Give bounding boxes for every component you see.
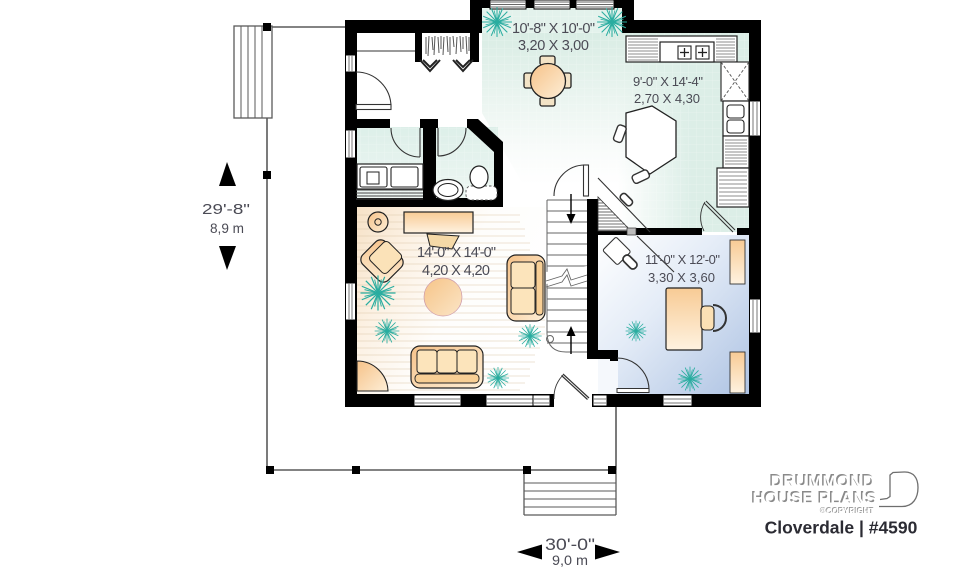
svg-text:14'-0" X 14'-0": 14'-0" X 14'-0" xyxy=(417,245,496,261)
svg-text:29'-8": 29'-8" xyxy=(202,201,250,218)
svg-text:2,70 X 4,30: 2,70 X 4,30 xyxy=(634,91,700,106)
svg-text:4,20 X 4,20: 4,20 X 4,20 xyxy=(422,263,490,279)
svg-text:3,20 X 3,00: 3,20 X 3,00 xyxy=(518,38,589,54)
svg-text:3,30 X 3,60: 3,30 X 3,60 xyxy=(648,270,715,285)
svg-text:10'-8" X 10'-0": 10'-8" X 10'-0" xyxy=(512,21,595,37)
svg-text:9,0 m: 9,0 m xyxy=(552,552,588,568)
svg-text:11'-0" X 12'-0": 11'-0" X 12'-0" xyxy=(645,252,720,267)
svg-text:9'-0" X 14'-4": 9'-0" X 14'-4" xyxy=(633,74,703,89)
svg-text:©COPYRIGHT: ©COPYRIGHT xyxy=(821,507,875,516)
svg-text:8,9 m: 8,9 m xyxy=(210,220,244,236)
svg-text:Cloverdale | #4590: Cloverdale | #4590 xyxy=(765,518,918,538)
